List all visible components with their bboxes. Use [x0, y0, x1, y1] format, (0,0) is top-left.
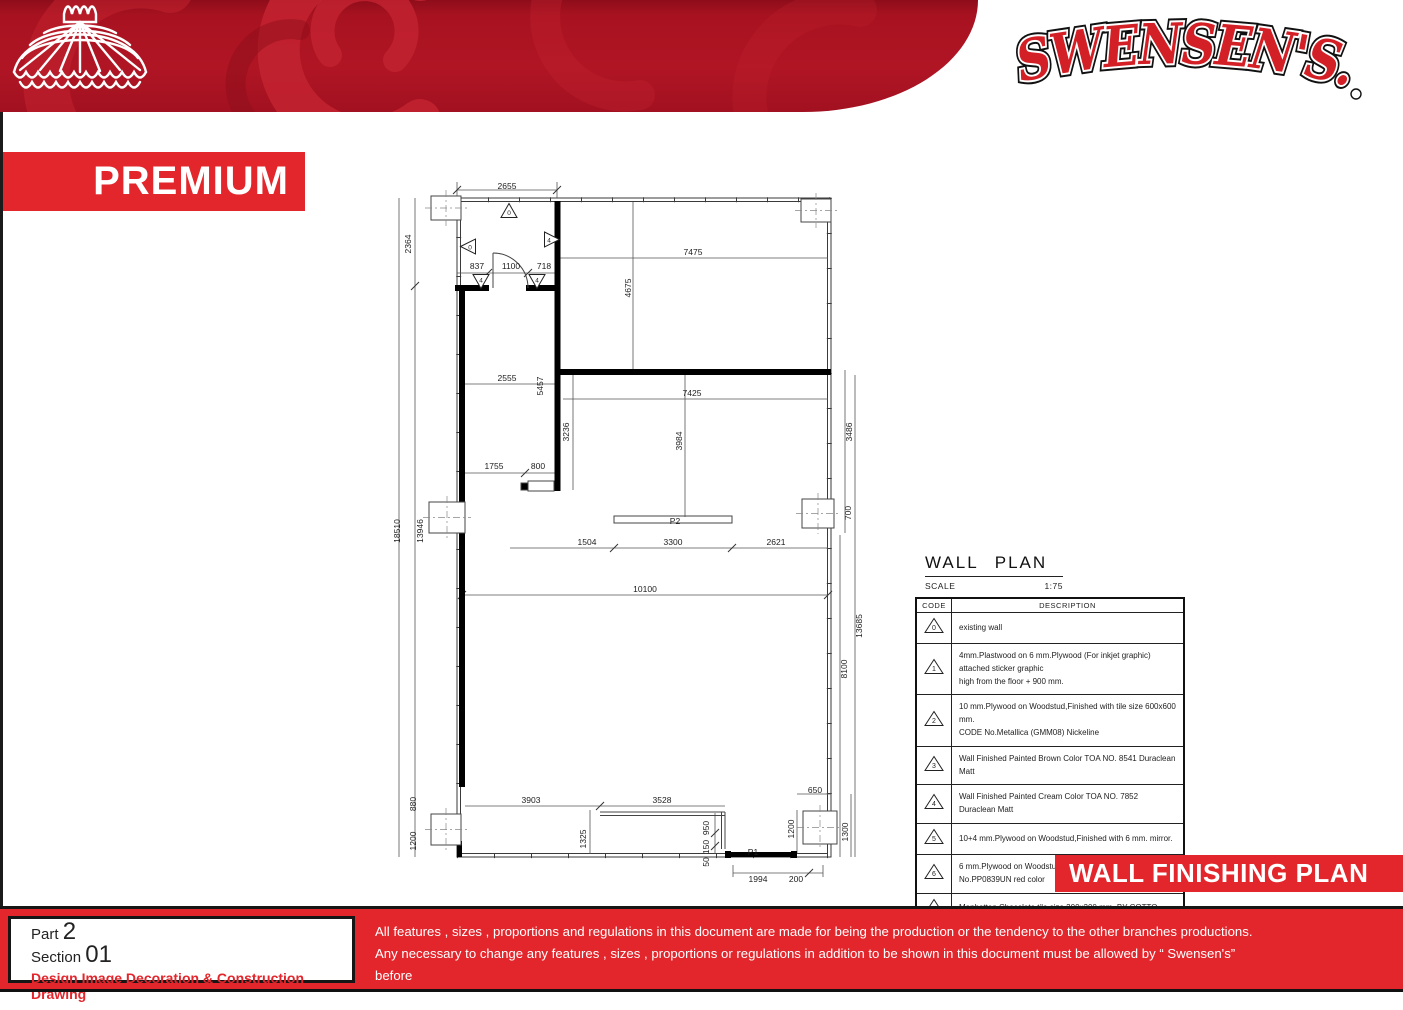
footer-part-box: Part 2 Section 01 Design Image Decoratio…	[8, 916, 355, 983]
finish-code-marker-icon: 4	[472, 273, 490, 290]
svg-text:4: 4	[479, 277, 483, 284]
legend-description: existing wall	[952, 613, 1185, 644]
wall-plan-title: WALL PLAN	[925, 553, 1063, 577]
svg-text:2: 2	[932, 718, 936, 725]
finish-code-marker-icon: 0	[459, 238, 477, 255]
svg-text:6: 6	[932, 871, 936, 878]
svg-text:SWENSEN'S.: SWENSEN'S.	[1015, 11, 1360, 99]
legend-row: 4Wall Finished Painted Cream Color TOA N…	[916, 785, 1184, 824]
svg-text:0: 0	[507, 210, 511, 217]
section-label: Section	[31, 949, 81, 966]
floor-plan: 2655236483711007187475467525555457323674…	[385, 165, 895, 910]
legend-header-code: CODE	[916, 598, 952, 613]
part-value: 2	[63, 918, 76, 945]
legend-description: 10 mm.Plywood on Woodstud,Finished with …	[952, 695, 1185, 746]
legend-description: Wall Finished Painted Cream Color TOA NO…	[952, 785, 1185, 824]
premium-banner: PREMIUM	[0, 152, 305, 211]
finish-code-marker-icon: 4	[528, 273, 546, 290]
svg-text:5: 5	[932, 836, 936, 843]
part-label: Part	[31, 926, 59, 943]
scale-label: SCALE	[925, 581, 955, 591]
code-triangle-icon: 2	[924, 710, 944, 727]
svg-text:0: 0	[468, 244, 472, 251]
code-triangle-icon: 0	[924, 617, 944, 634]
legend-description: Wall Finished Painted Brown Color TOA NO…	[952, 746, 1185, 785]
brand-name: SWENSEN'S.	[1015, 11, 1360, 99]
legend-header-description: DESCRIPTION	[952, 598, 1185, 613]
legend-row: 3Wall Finished Painted Brown Color TOA N…	[916, 746, 1184, 785]
legend-row: 210 mm.Plywood on Woodstud,Finished with…	[916, 695, 1184, 746]
code-triangle-icon: 1	[924, 658, 944, 675]
footer-subtitle: Design Image Decoration & Construction D…	[31, 970, 352, 1002]
drawing-sheet: { "colors":{"brand_red":"#e2262c","logo_…	[0, 0, 1403, 992]
disclaimer-line: All features , sizes , proportions and r…	[375, 921, 1265, 943]
disclaimer: All features , sizes , proportions and r…	[375, 921, 1265, 1010]
legend-row: 510+4 mm.Plywood on Woodstud,Finished wi…	[916, 823, 1184, 854]
finish-code-marker-icon: 0	[500, 202, 518, 219]
disclaimer-line: Any necessary to change any features , s…	[375, 943, 1265, 987]
code-triangle-icon: 5	[924, 828, 944, 845]
legend-description: 4mm.Plastwood on 6 mm.Plywood (For inkje…	[952, 644, 1185, 695]
svg-text:0: 0	[932, 625, 936, 632]
code-triangle-icon: 4	[924, 793, 944, 810]
wall-plan-header: WALL PLAN SCALE 1:75	[925, 553, 1063, 591]
legend-description: 10+4 mm.Plywood on Woodstud,Finished wit…	[952, 823, 1185, 854]
sheet-title-banner: WALL FINISHING PLAN	[1055, 855, 1403, 892]
header-band	[0, 0, 978, 112]
svg-text:1: 1	[932, 666, 936, 673]
svg-text:3: 3	[932, 763, 936, 770]
page-left-border	[0, 112, 3, 989]
svg-text:4: 4	[932, 801, 936, 808]
svg-text:4: 4	[535, 277, 539, 284]
footer-band: Part 2 Section 01 Design Image Decoratio…	[0, 906, 1403, 992]
svg-text:4: 4	[547, 237, 551, 244]
code-triangle-icon: 3	[924, 755, 944, 772]
code-triangle-icon: 6	[924, 863, 944, 880]
swensens-lamp-icon	[0, 0, 160, 101]
swensens-logo: SWENSEN'S. SWENSEN'S. SWENSEN'S.	[1015, 6, 1365, 106]
finish-code-marker-icon: 4	[542, 231, 560, 248]
section-value: 01	[85, 941, 112, 968]
legend-row: 14mm.Plastwood on 6 mm.Plywood (For inkj…	[916, 644, 1184, 695]
scale-value: 1:75	[1044, 581, 1063, 591]
legend-row: 0existing wall	[916, 613, 1184, 644]
marker-layer: 00444	[385, 165, 895, 910]
